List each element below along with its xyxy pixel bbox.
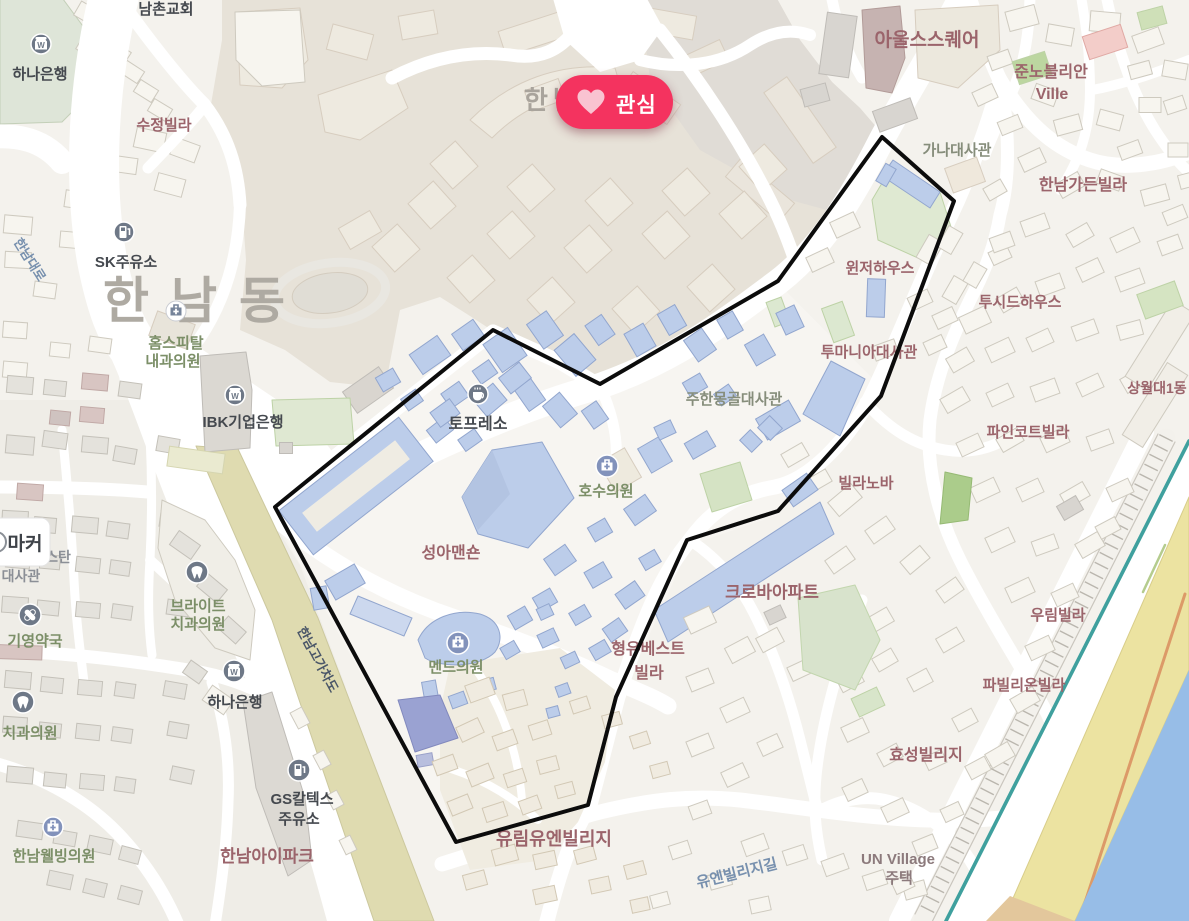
svg-text:남촌교회: 남촌교회 — [138, 1, 193, 18]
svg-text:기영약국: 기영약국 — [7, 632, 62, 650]
svg-text:홈스피탈: 홈스피탈 — [148, 334, 203, 352]
svg-text:치과의원: 치과의원 — [2, 724, 57, 742]
svg-text:파빌리온빌라: 파빌리온빌라 — [983, 677, 1066, 694]
svg-text:한남가든빌라: 한남가든빌라 — [1039, 175, 1128, 194]
svg-text:주한몽골대사관: 주한몽골대사관 — [686, 391, 783, 408]
svg-text:수정빌라: 수정빌라 — [136, 116, 191, 134]
svg-text:하나은행: 하나은행 — [207, 694, 262, 711]
svg-text:치과의원: 치과의원 — [170, 615, 225, 633]
svg-text:마커: 마커 — [8, 533, 43, 555]
svg-text:유림유엔빌리지: 유림유엔빌리지 — [496, 829, 612, 849]
svg-text:하나은행: 하나은행 — [12, 66, 67, 83]
svg-text:한남웰빙의원: 한남웰빙의원 — [13, 847, 96, 865]
svg-text:크로바아파트: 크로바아파트 — [725, 583, 819, 602]
svg-text:IBK기업은행: IBK기업은행 — [202, 414, 283, 431]
svg-text:호수의원: 호수의원 — [578, 482, 633, 500]
svg-text:윈저하우스: 윈저하우스 — [845, 260, 914, 277]
svg-text:성아맨숀: 성아맨숀 — [422, 544, 481, 562]
svg-text:W: W — [231, 392, 239, 401]
svg-text:효성빌리지: 효성빌리지 — [889, 746, 963, 764]
svg-text:토프레소: 토프레소 — [449, 415, 508, 433]
svg-text:UN Village: UN Village — [861, 851, 935, 868]
svg-text:빌라: 빌라 — [634, 664, 664, 682]
svg-text:GS칼텍스: GS칼텍스 — [270, 790, 333, 808]
svg-text:내과의원: 내과의원 — [145, 352, 200, 370]
svg-text:주택: 주택 — [885, 869, 913, 887]
svg-text:가나대사관: 가나대사관 — [922, 142, 991, 159]
svg-text:준노블리안: 준노블리안 — [1014, 63, 1088, 81]
svg-text:Ville: Ville — [1036, 86, 1069, 103]
svg-text:브라이트: 브라이트 — [170, 598, 225, 615]
svg-text:SK주유소: SK주유소 — [95, 254, 157, 271]
svg-text:빌라노바: 빌라노바 — [838, 474, 893, 492]
svg-text:투마니아대사관: 투마니아대사관 — [821, 344, 918, 361]
svg-text:아울스스퀘어: 아울스스퀘어 — [875, 29, 980, 51]
svg-text:한남아이파크: 한남아이파크 — [220, 847, 314, 866]
svg-text:대사관: 대사관 — [2, 568, 41, 584]
svg-text:투시드하우스: 투시드하우스 — [979, 294, 1062, 311]
svg-text:형유베스트: 형유베스트 — [611, 639, 685, 658]
svg-text:상월대1동: 상월대1동 — [1127, 380, 1186, 396]
svg-text:멘드의원: 멘드의원 — [428, 658, 483, 676]
svg-text:우림빌라: 우림빌라 — [1030, 606, 1085, 624]
svg-text:W: W — [37, 41, 45, 50]
svg-text:W: W — [230, 668, 238, 677]
svg-text:한남동: 한남동 — [103, 273, 307, 329]
svg-text:파인코트빌라: 파인코트빌라 — [987, 423, 1070, 441]
svg-text:주유소: 주유소 — [278, 811, 320, 828]
